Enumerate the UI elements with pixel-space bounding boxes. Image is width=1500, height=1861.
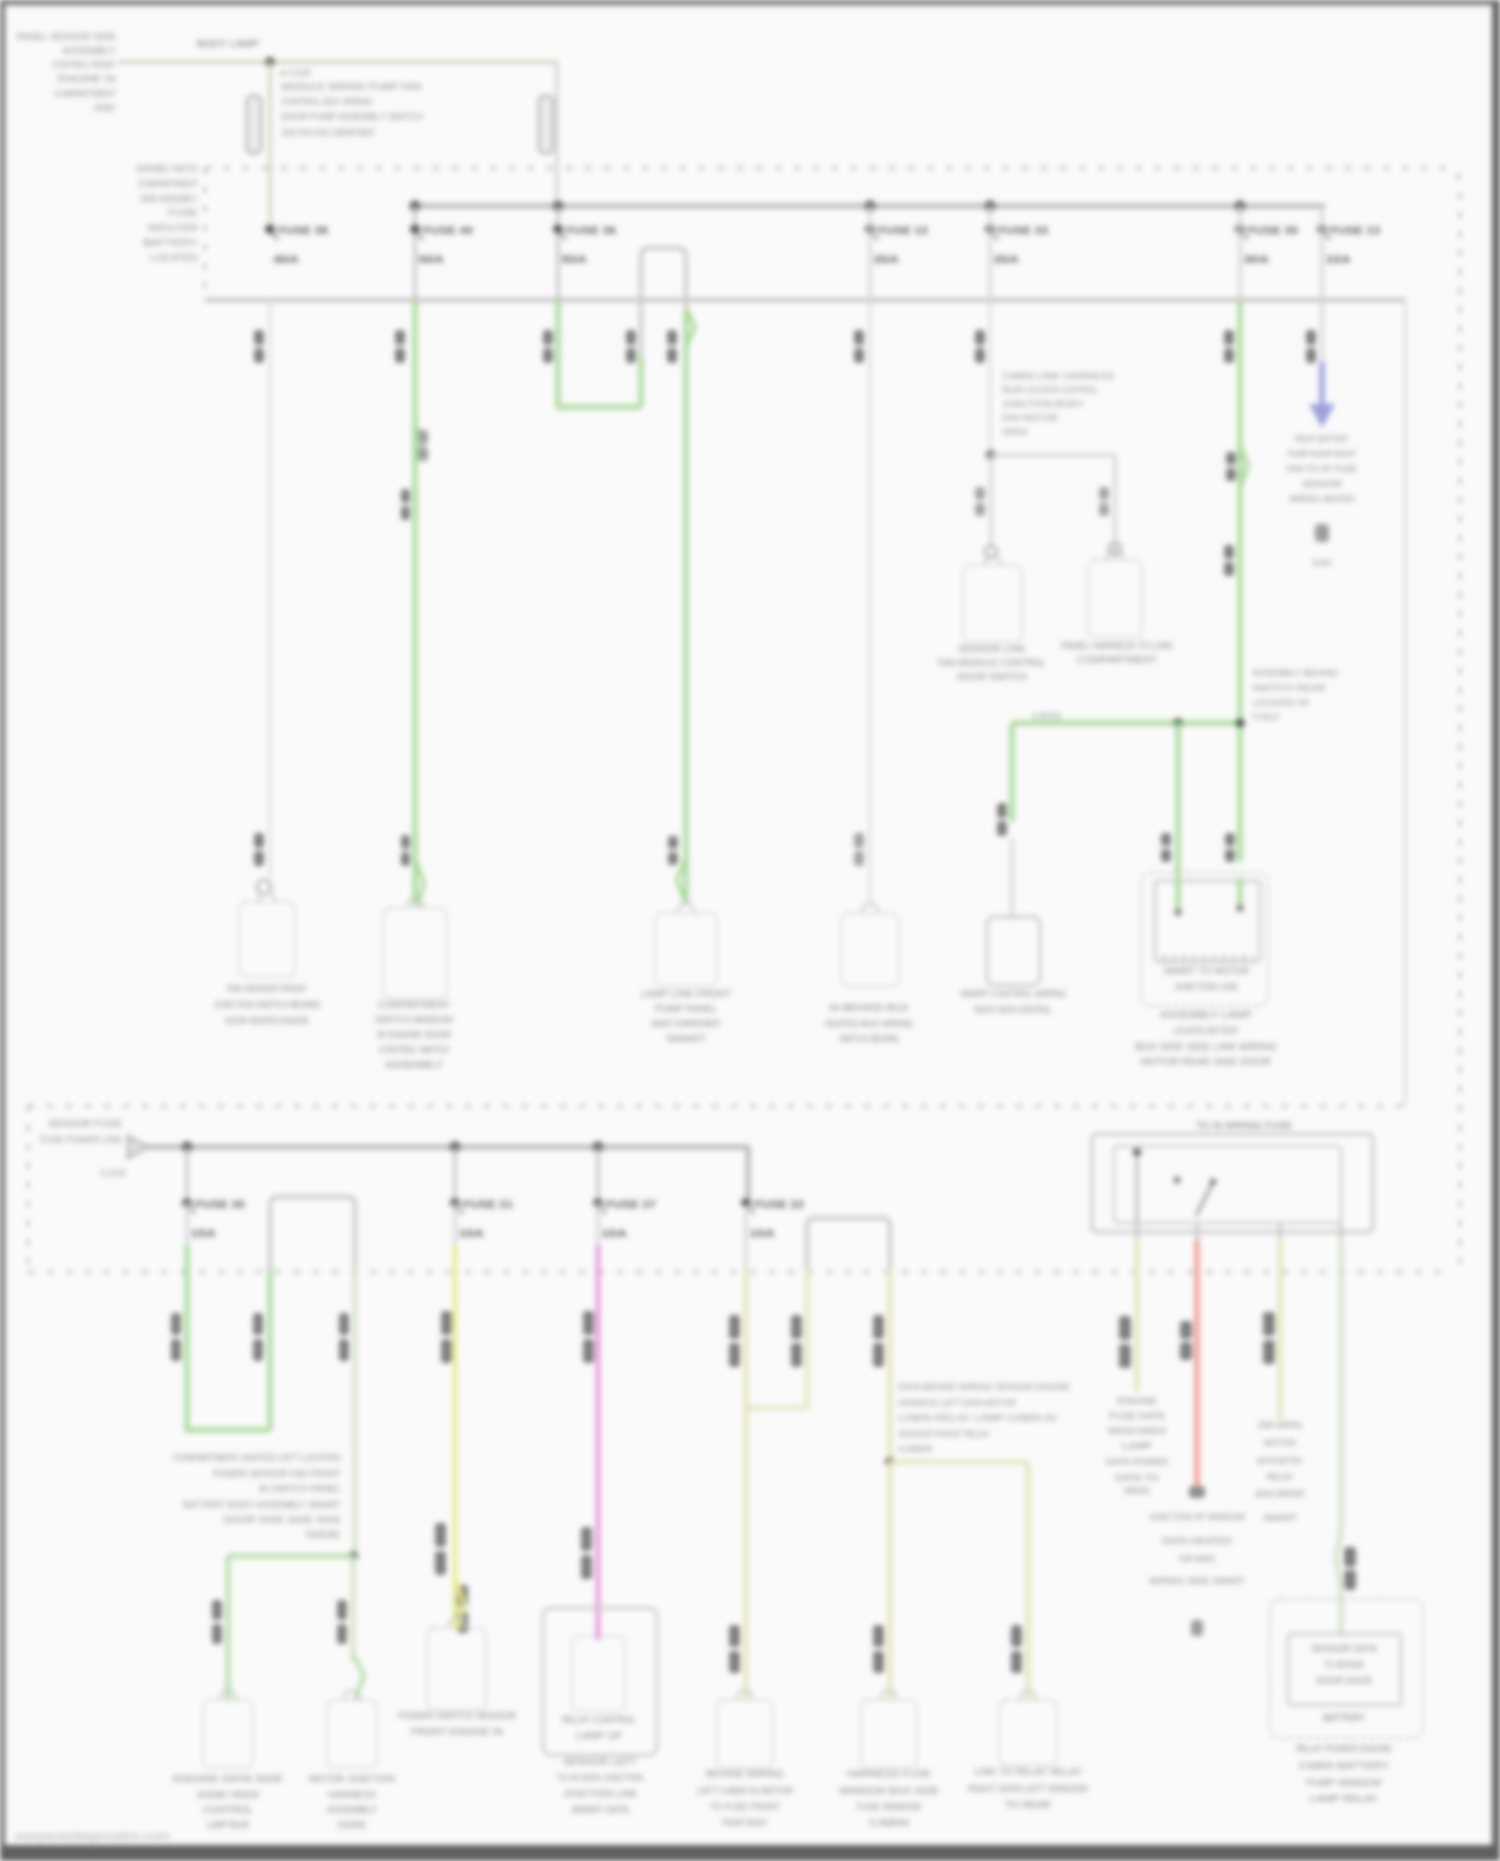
- svg-text:RIGHT BATTERY: RIGHT BATTERY: [1295, 434, 1349, 445]
- svg-text:HEATED BOX WIRING: HEATED BOX WIRING: [825, 1019, 913, 1030]
- svg-text:30A: 30A: [1243, 254, 1269, 266]
- svg-text:FRONT ENGINE IN: FRONT ENGINE IN: [411, 1727, 503, 1738]
- svg-text:COMPARTMENT: COMPARTMENT: [1077, 655, 1157, 666]
- svg-text:MOTOR BATTERY: MOTOR BATTERY: [1257, 1456, 1303, 1467]
- svg-text:RELAY POWER ENGINE: RELAY POWER ENGINE: [1296, 1744, 1392, 1755]
- svg-text:ASSEMBLY: ASSEMBLY: [385, 1060, 443, 1071]
- svg-text:RELAY: RELAY: [1267, 1472, 1295, 1483]
- svg-text:DOOR SIDE SIDE SIDE: DOOR SIDE SIDE SIDE: [223, 1515, 341, 1526]
- svg-text:10A: 10A: [458, 1228, 484, 1240]
- svg-text:DATA HEATED: DATA HEATED: [1162, 1536, 1232, 1547]
- svg-text:SENSOR COMPARTMENT: SENSOR COMPARTMENT: [1255, 1489, 1305, 1500]
- svg-text:SMART TO MOTOR: SMART TO MOTOR: [1163, 966, 1249, 977]
- svg-text:LAMP OF: LAMP OF: [576, 1731, 622, 1742]
- svg-text:MOTOR JUNCTION: MOTOR JUNCTION: [309, 1774, 395, 1785]
- svg-text:SENSOR LEFT: SENSOR LEFT: [563, 1757, 637, 1768]
- svg-text:ASSEMBLY LAMP: ASSEMBLY LAMP: [1160, 1010, 1252, 1021]
- svg-text:20A: 20A: [993, 254, 1019, 266]
- svg-text:JUNCTION LINK: JUNCTION LINK: [563, 1789, 637, 1800]
- svg-text:IN ENGINE DOOR: IN ENGINE DOOR: [377, 1030, 451, 1041]
- svg-text:TO RELAY: TO RELAY: [1252, 712, 1280, 723]
- svg-text:PUMP WINDOW: PUMP WINDOW: [1306, 1778, 1383, 1789]
- svg-text:JUNCTION BODY: JUNCTION BODY: [1002, 399, 1085, 410]
- svg-text:LOCATED: LOCATED: [150, 253, 198, 264]
- svg-text:JUNCTION SWITCH BEHIND: JUNCTION SWITCH BEHIND: [214, 1000, 320, 1011]
- svg-text:MODULE DOOR: MODULE DOOR: [148, 223, 198, 234]
- svg-text:FAN SENSOR FRONT: FAN SENSOR FRONT: [227, 984, 307, 995]
- svg-text:LAMP: LAMP: [1122, 1441, 1152, 1452]
- svg-text:FUSE: FUSE: [168, 208, 198, 219]
- svg-text:FUSE 27: FUSE 27: [606, 1199, 656, 1211]
- svg-text:HARNESS: HARNESS: [1002, 427, 1028, 438]
- svg-text:WINDOW BOX SIDE: WINDOW BOX SIDE: [839, 1786, 939, 1797]
- svg-text:TO IN WIRING FUSE: TO IN WIRING FUSE: [1196, 1121, 1292, 1132]
- svg-text:BODY LAMP: BODY LAMP: [197, 39, 259, 50]
- svg-text:CABIN: CABIN: [869, 1818, 909, 1829]
- svg-text:FUSE 33: FUSE 33: [998, 225, 1048, 237]
- svg-text:POWER SWITCH SENSOR: POWER SWITCH SENSOR: [398, 1711, 516, 1722]
- svg-text:CONTROL FRONT: CONTROL FRONT: [52, 60, 116, 71]
- svg-text:SWITCH BEHIND: SWITCH BEHIND: [839, 1034, 899, 1045]
- svg-text:HARNESS LEFT DATA MOTOR: HARNESS LEFT DATA MOTOR: [898, 1398, 1016, 1409]
- svg-text:ASSEMBLY WINDOW: ASSEMBLY WINDOW: [197, 1790, 259, 1801]
- svg-text:TO REAR: TO REAR: [1005, 1800, 1051, 1811]
- svg-text:SIDE ASSEMBLY: SIDE ASSEMBLY: [140, 194, 198, 205]
- svg-text:FUSE WINDOW: FUSE WINDOW: [857, 1802, 921, 1813]
- svg-text:WINDOW HARNESS: WINDOW HARNESS: [1108, 1426, 1166, 1437]
- svg-text:FRONT BODY: FRONT BODY: [722, 1818, 768, 1829]
- svg-text:FAN MOTOR: FAN MOTOR: [1002, 413, 1058, 424]
- svg-text:RIGHT DATA CONTROL: RIGHT DATA CONTROL: [974, 1005, 1052, 1016]
- svg-text:C102: C102: [100, 1168, 126, 1178]
- svg-text:SIDE WIRING: SIDE WIRING: [1258, 1420, 1302, 1431]
- svg-text:FUSE 38: FUSE 38: [278, 225, 328, 237]
- svg-text:LOCATED BATTERY: LOCATED BATTERY: [1173, 1026, 1239, 1037]
- svg-text:SIDE: SIDE: [305, 1530, 342, 1541]
- svg-text:BEHIND WIRING: BEHIND WIRING: [706, 1769, 784, 1780]
- svg-text:SENSOR FUSE: SENSOR FUSE: [48, 1119, 122, 1130]
- svg-text:HARNESS: HARNESS: [328, 1790, 376, 1801]
- svg-text:40A: 40A: [273, 254, 299, 266]
- svg-text:DATA BEHIND WIRING SENSOR ENGI: DATA BEHIND WIRING SENSOR ENGINE: [898, 1382, 1070, 1393]
- svg-text:DOOR DOOR: DOOR DOOR: [1316, 1676, 1372, 1687]
- svg-text:FUSE 30: FUSE 30: [195, 1199, 245, 1211]
- svg-text:FUSE POWER LINK: FUSE POWER LINK: [40, 1135, 122, 1146]
- svg-text:DOOR PUMP ASSEMBLY SWITCH: DOOR PUMP ASSEMBLY SWITCH: [281, 112, 423, 123]
- svg-text:TO IN DATA JUNCTION: TO IN DATA JUNCTION: [557, 1773, 643, 1784]
- svg-text:DATA POWER: DATA POWER: [1106, 1457, 1168, 1468]
- svg-text:ENGINE: ENGINE: [338, 1820, 366, 1831]
- svg-text:C4031: C4031: [1032, 711, 1062, 721]
- svg-text:DOOR HEATED ENGINE: DOOR HEATED ENGINE: [225, 1016, 309, 1027]
- svg-text:FUSE 22: FUSE 22: [754, 1199, 804, 1211]
- svg-text:IN BEHIND BOX: IN BEHIND BOX: [829, 1003, 909, 1014]
- svg-text:LOCATED OF: LOCATED OF: [1252, 698, 1310, 709]
- svg-text:COMPARTMENT: COMPARTMENT: [54, 89, 116, 100]
- svg-text:A C228: A C228: [280, 68, 310, 78]
- svg-text:easyautodiagnostics.com: easyautodiagnostics.com: [15, 1829, 170, 1843]
- svg-text:JUNCTION FUSE COMPARTMENT: JUNCTION FUSE COMPARTMENT: [281, 128, 375, 139]
- svg-text:ASSEMBLY SWITCH: ASSEMBLY SWITCH: [136, 164, 198, 175]
- svg-text:LINK TO RELAY RELAY: LINK TO RELAY RELAY: [974, 1767, 1082, 1778]
- svg-text:RELAY CONTROL: RELAY CONTROL: [562, 1715, 636, 1726]
- svg-text:SENSOR: SENSOR: [1302, 479, 1342, 490]
- svg-text:CABIN BATTERY: CABIN BATTERY: [1299, 1761, 1389, 1772]
- svg-text:10A: 10A: [749, 1228, 775, 1240]
- svg-text:RIGHT DATA LEFT WINDOW: RIGHT DATA LEFT WINDOW: [968, 1784, 1089, 1795]
- svg-text:20A: 20A: [873, 254, 899, 266]
- svg-text:WIRING SIDE SMART: WIRING SIDE SMART: [1149, 1576, 1245, 1587]
- svg-text:LAMP REAR: LAMP REAR: [207, 1820, 249, 1831]
- svg-text:COMPARTMENT: COMPARTMENT: [138, 179, 198, 190]
- svg-text:PANEL SENSOR SIDE: PANEL SENSOR SIDE: [16, 32, 116, 43]
- svg-text:CONTROL BOX WIRING: CONTROL BOX WIRING: [281, 97, 373, 108]
- svg-text:SMART COMPARTMENT: SMART COMPARTMENT: [651, 1019, 721, 1030]
- svg-text:SMART CONTROL WIRING: SMART CONTROL WIRING: [960, 989, 1066, 1000]
- svg-text:FAN MODULE CONTROL: FAN MODULE CONTROL: [938, 658, 1046, 669]
- svg-text:SWITCH REAR: SWITCH REAR: [1252, 683, 1326, 694]
- svg-text:SMART: SMART: [1263, 1513, 1297, 1524]
- svg-text:HARNESS FUSE: HARNESS FUSE: [847, 1769, 931, 1780]
- svg-text:CABIN LINK HARNESS: CABIN LINK HARNESS: [1002, 371, 1114, 382]
- svg-text:SWITCH WINDOW: SWITCH WINDOW: [375, 1015, 454, 1026]
- svg-text:LAMP LINK FRONT: LAMP LINK FRONT: [641, 989, 731, 1000]
- svg-text:10A: 10A: [1325, 254, 1351, 266]
- svg-text:ASSEMBLY: ASSEMBLY: [94, 103, 116, 114]
- svg-text:CABIN RELAY LAMP CABIN IN: CABIN RELAY LAMP CABIN IN: [898, 1413, 1056, 1424]
- svg-text:CONTROL: CONTROL: [203, 1805, 253, 1816]
- svg-text:15A: 15A: [190, 1228, 216, 1240]
- svg-text:TO FUSE FRONT: TO FUSE FRONT: [710, 1802, 780, 1813]
- svg-text:JUNCTION LINK: JUNCTION LINK: [1174, 982, 1238, 993]
- svg-text:LAMP RELAY: LAMP RELAY: [1310, 1794, 1378, 1805]
- svg-text:ASSEMBLY BEHIND: ASSEMBLY BEHIND: [1252, 668, 1338, 679]
- svg-text:ENGINE: ENGINE: [1117, 1396, 1157, 1407]
- svg-text:PUMP DOOR RIGHT: PUMP DOOR RIGHT: [1288, 449, 1356, 460]
- svg-text:MODULE WIRING PUMP FAN: MODULE WIRING PUMP FAN: [281, 82, 421, 93]
- svg-text:FUSE 12: FUSE 12: [878, 225, 928, 237]
- svg-text:POWER SENSOR FAN FRONT: POWER SENSOR FAN FRONT: [213, 1469, 341, 1480]
- svg-text:ENGINE IN: ENGINE IN: [58, 74, 116, 85]
- svg-text:FUSE 35: FUSE 35: [1248, 225, 1298, 237]
- svg-text:SENSOR DATA: SENSOR DATA: [1311, 1644, 1377, 1655]
- svg-text:COMPARTMENT HEATED LEFT LOCATE: COMPARTMENT HEATED LEFT LOCATED: [173, 1453, 341, 1464]
- svg-text:FUSE 21: FUSE 21: [463, 1199, 513, 1211]
- svg-text:BATTERY: BATTERY: [1323, 1713, 1365, 1724]
- svg-text:BATTERY: BATTERY: [143, 238, 198, 249]
- svg-text:S40: S40: [1312, 558, 1332, 568]
- svg-text:BATTERY BODY ASSEMBLY SMART: BATTERY BODY ASSEMBLY SMART: [183, 1500, 341, 1511]
- svg-text:FUSE 13: FUSE 13: [1330, 225, 1380, 237]
- svg-text:ASSEMBLY: ASSEMBLY: [62, 46, 116, 57]
- svg-text:PUMP PANEL: PUMP PANEL: [655, 1004, 717, 1015]
- svg-text:FAN TO OF FUSE: FAN TO OF FUSE: [1287, 464, 1357, 475]
- svg-text:SMART DATA: SMART DATA: [571, 1805, 629, 1816]
- svg-text:WIRING HEATED: WIRING HEATED: [1289, 494, 1355, 505]
- svg-text:FUSE 40: FUSE 40: [423, 225, 473, 237]
- svg-text:WIRING: WIRING: [1124, 1486, 1150, 1497]
- svg-text:50A: 50A: [561, 254, 587, 266]
- svg-text:CONTROL SWITCH: CONTROL SWITCH: [379, 1045, 449, 1056]
- svg-text:FUSE 36: FUSE 36: [566, 225, 616, 237]
- svg-text:ASSEMBLY: ASSEMBLY: [327, 1805, 377, 1816]
- svg-text:PUMP HARNESS: PUMP HARNESS: [1179, 1554, 1215, 1565]
- svg-text:SENSOR LINK: SENSOR LINK: [958, 644, 1026, 655]
- svg-text:IN SWITCH PANEL: IN SWITCH PANEL: [259, 1484, 341, 1495]
- svg-text:SENSOR FRONT RELAY: SENSOR FRONT RELAY: [898, 1429, 991, 1440]
- svg-text:DOOR SWITCH: DOOR SWITCH: [957, 672, 1027, 683]
- svg-text:FUSE DATA: FUSE DATA: [1109, 1411, 1166, 1422]
- svg-text:MOTOR: MOTOR: [1264, 1438, 1296, 1449]
- svg-text:CABIN: CABIN: [898, 1444, 932, 1455]
- svg-text:DATA TO: DATA TO: [1115, 1473, 1159, 1484]
- svg-text:JUNCTION OF WINDOW: JUNCTION OF WINDOW: [1149, 1512, 1245, 1523]
- svg-text:SMART: SMART: [666, 1034, 706, 1045]
- svg-text:50A: 50A: [418, 254, 444, 266]
- svg-text:TO SENSOR: TO SENSOR: [1324, 1660, 1364, 1671]
- svg-text:MOTOR REAR SIDE DOOR: MOTOR REAR SIDE DOOR: [1141, 1057, 1271, 1068]
- svg-text:LEFT CABIN IN MOTOR: LEFT CABIN IN MOTOR: [697, 1786, 793, 1797]
- svg-text:10A: 10A: [601, 1228, 627, 1240]
- svg-text:BOX SIDE SIDE LINK WIRING: BOX SIDE SIDE LINK WIRING: [1135, 1042, 1277, 1053]
- svg-text:ENGINE DATA SIDE: ENGINE DATA SIDE: [173, 1774, 283, 1785]
- svg-text:PANEL HARNESS TO LINK: PANEL HARNESS TO LINK: [1061, 641, 1173, 652]
- svg-text:COMPARTMENT: COMPARTMENT: [378, 1000, 450, 1011]
- svg-text:REAR LOCATED CONTROL: REAR LOCATED CONTROL: [1002, 385, 1098, 396]
